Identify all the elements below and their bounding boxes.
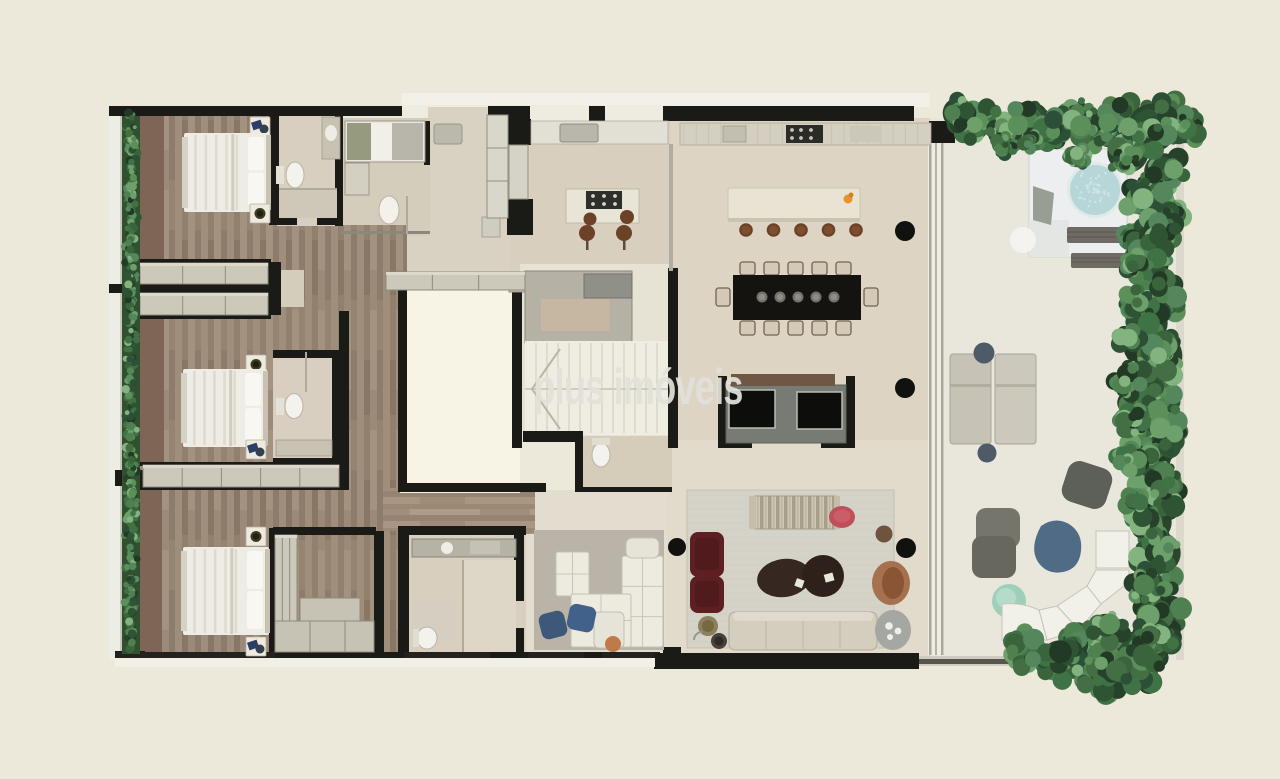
svg-text:plus imóveis: plus imóveis	[533, 360, 742, 415]
